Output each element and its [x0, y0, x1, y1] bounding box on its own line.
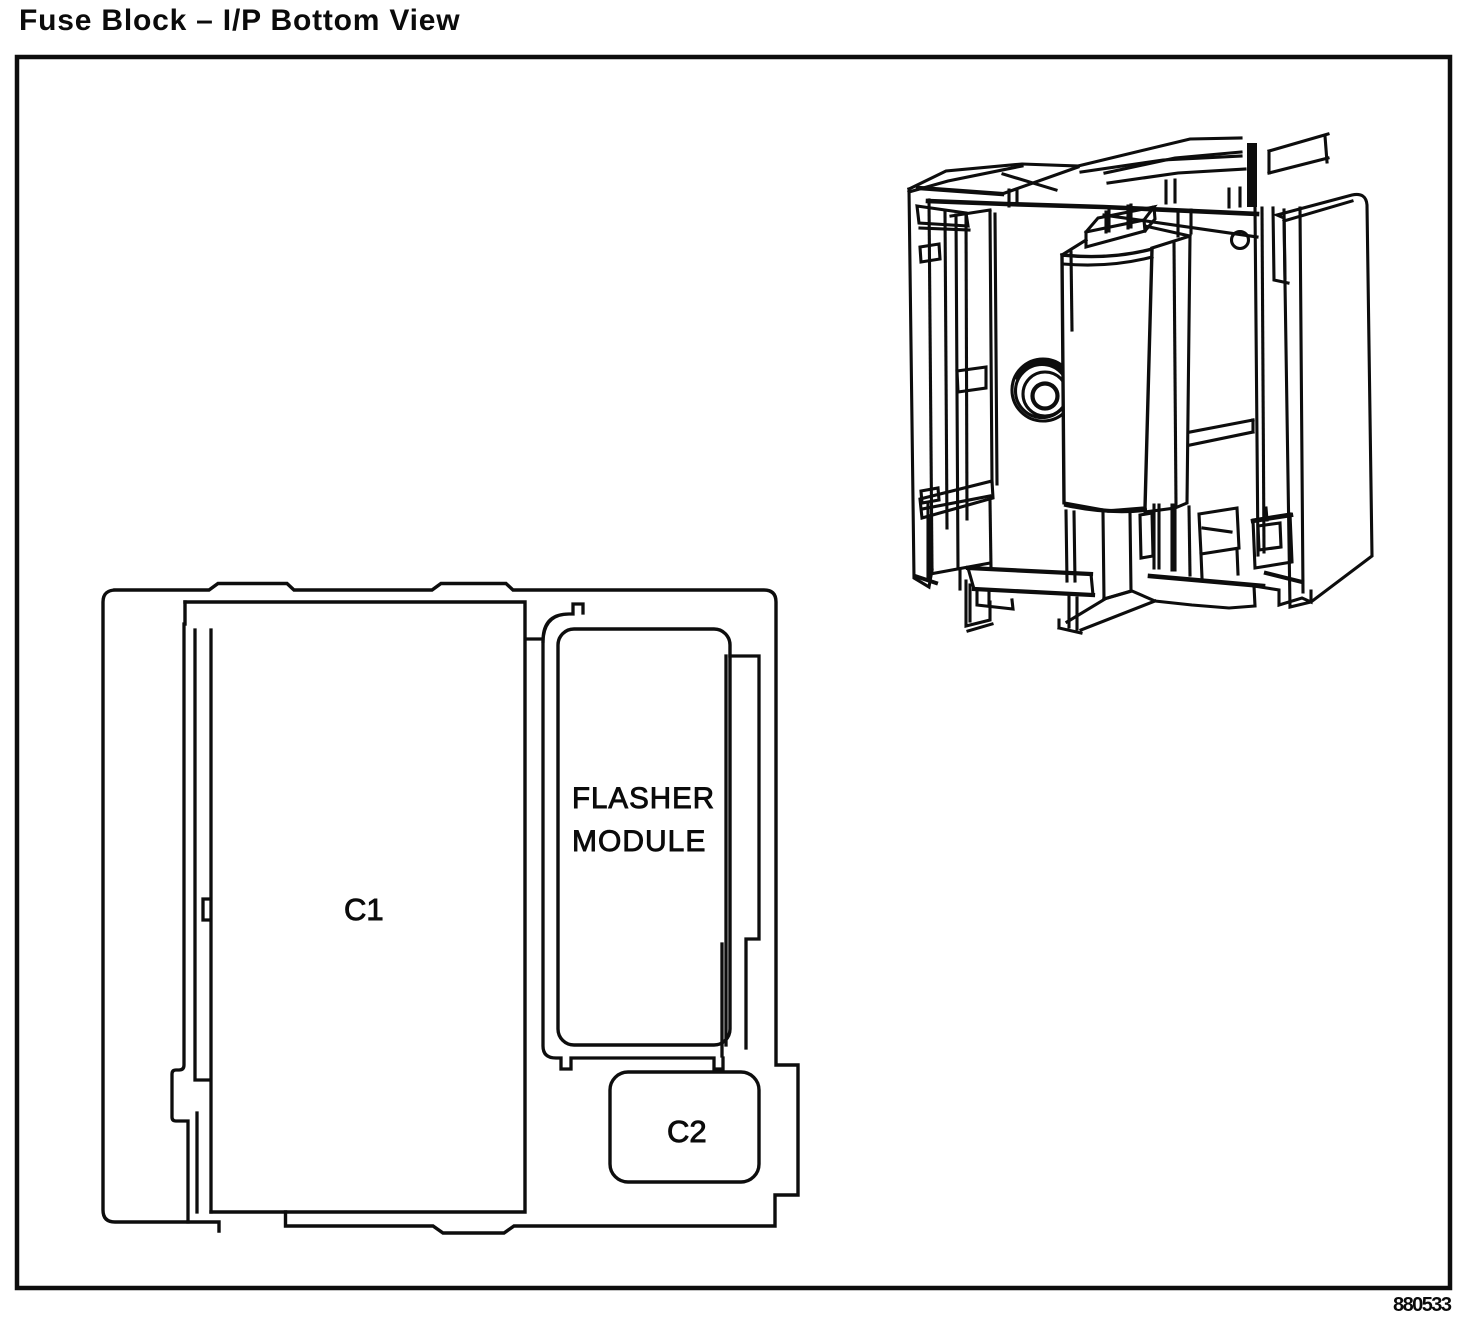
svg-text:C1: C1	[344, 892, 384, 927]
svg-text:FLASHER: FLASHER	[572, 782, 715, 815]
svg-text:C2: C2	[667, 1114, 707, 1149]
svg-text:MODULE: MODULE	[572, 825, 706, 858]
